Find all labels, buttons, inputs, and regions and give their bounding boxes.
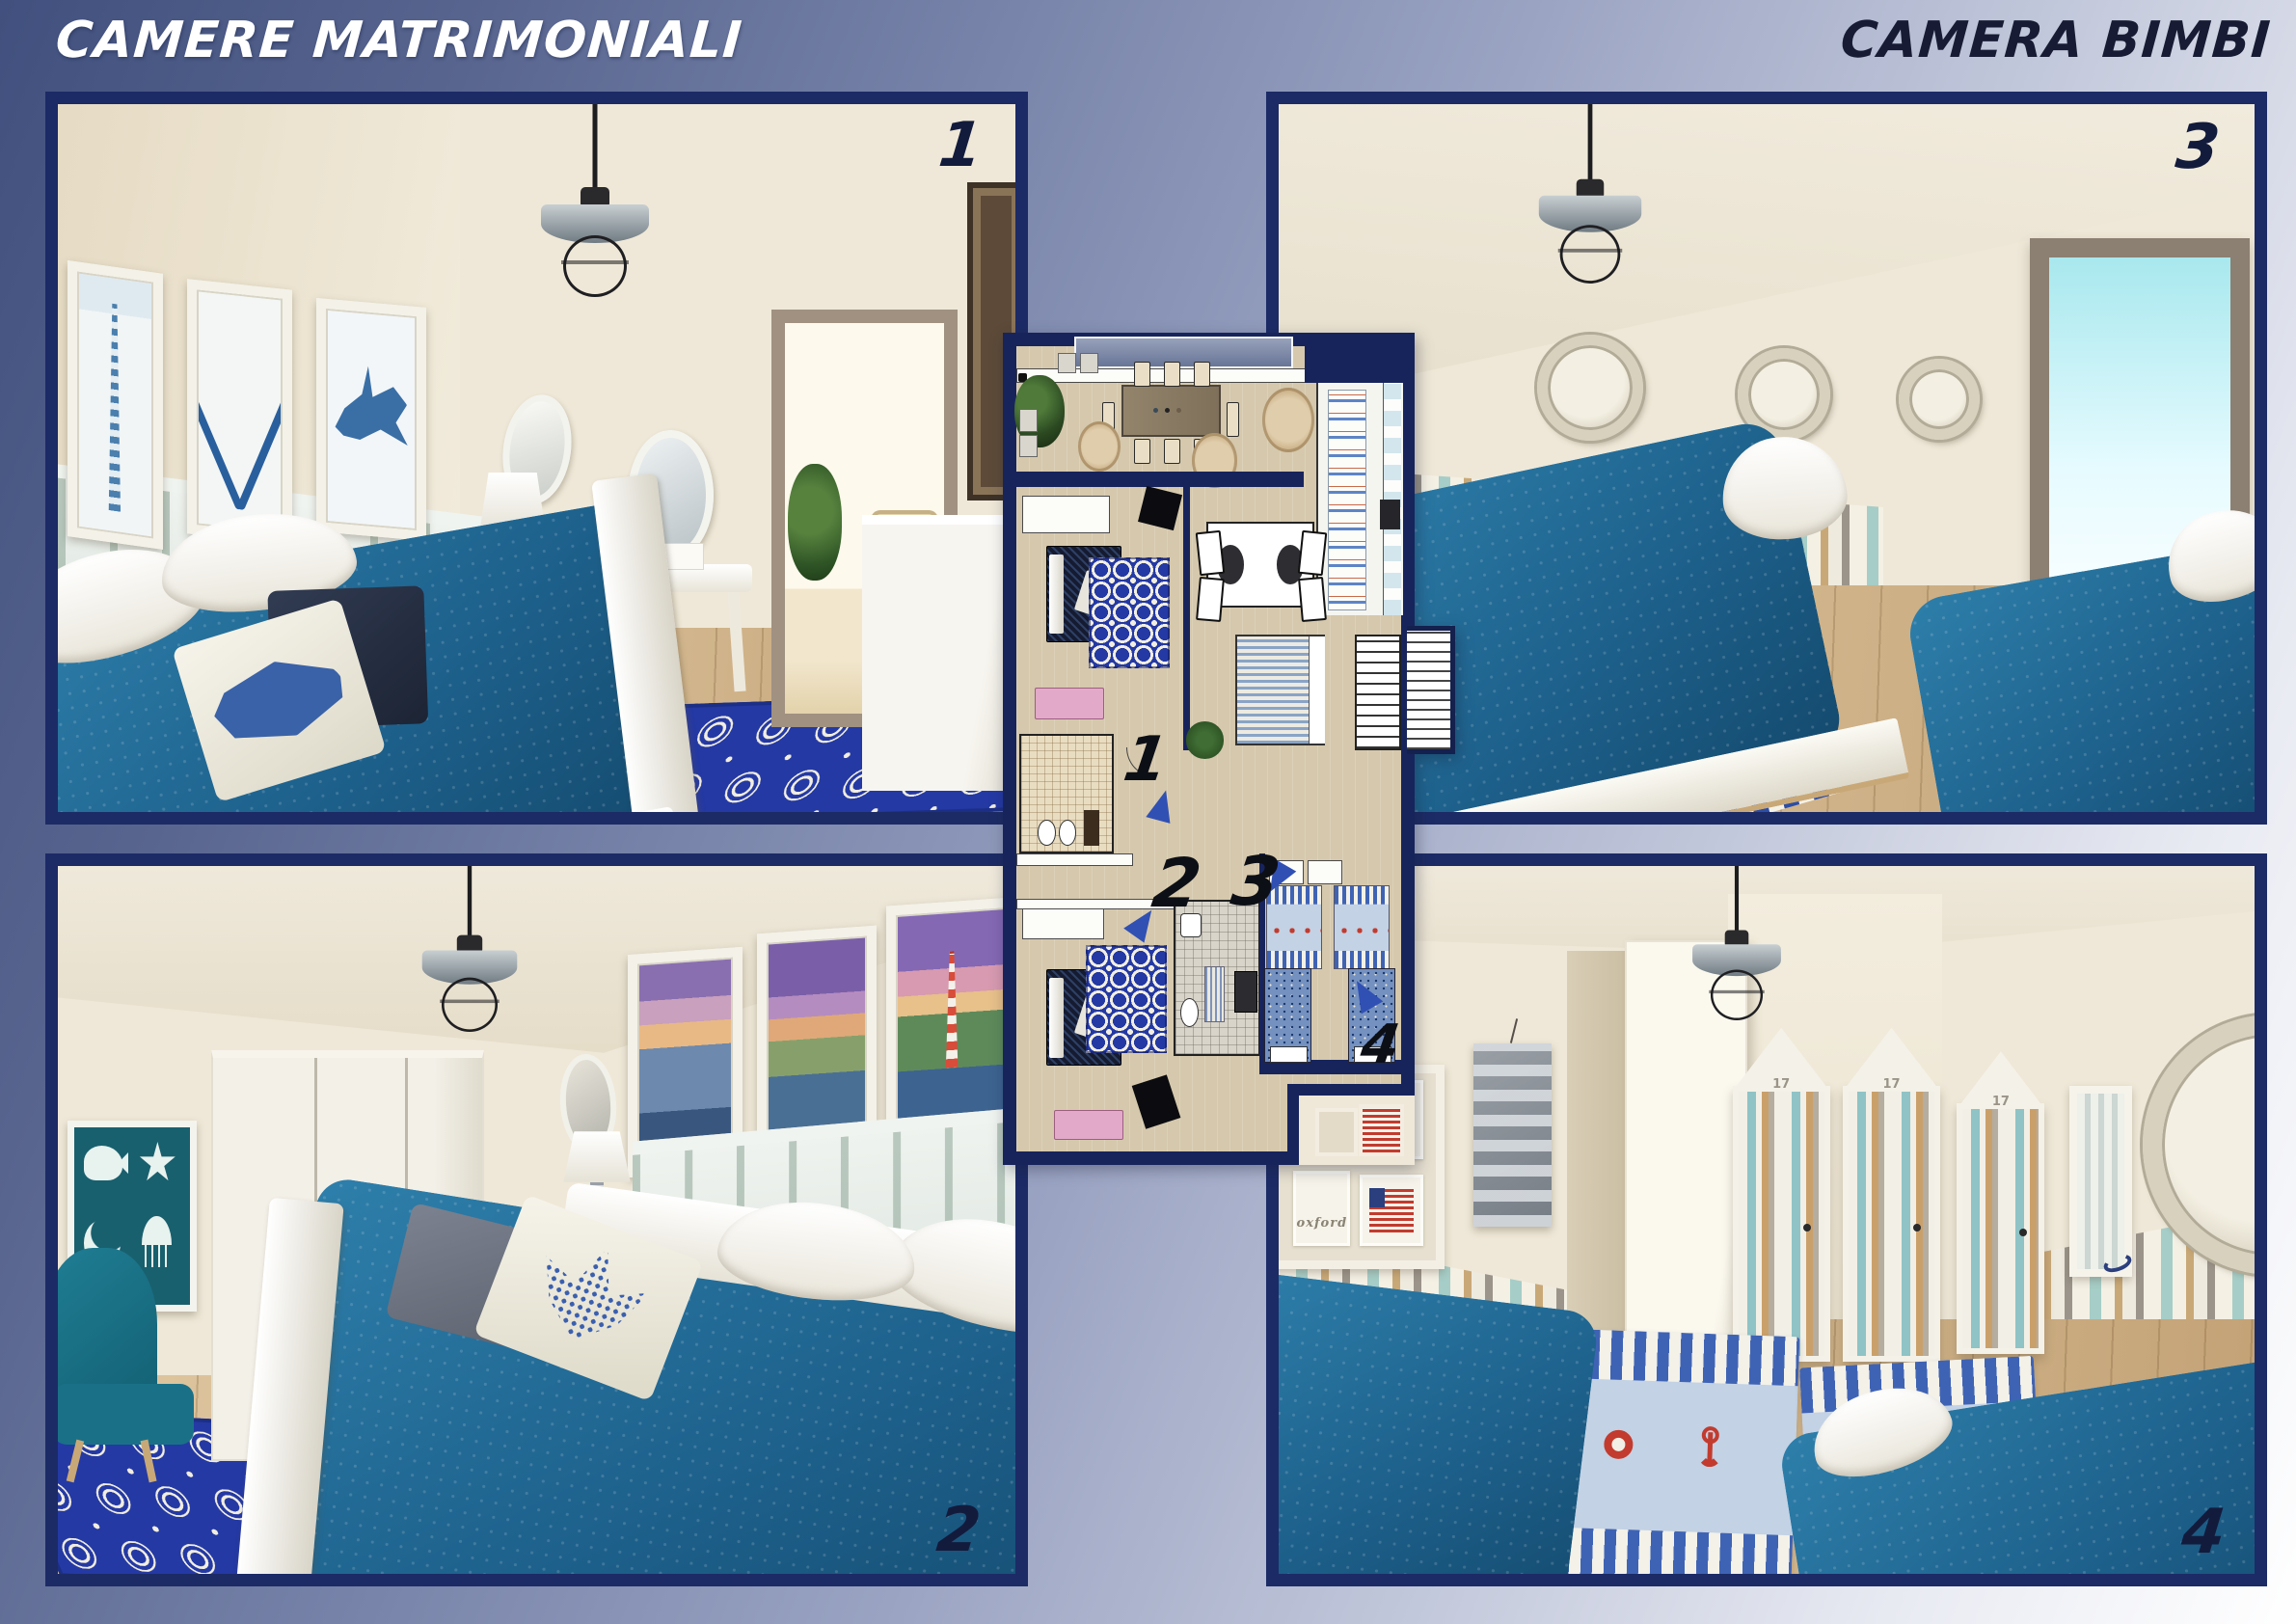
floor-plan-interior: 1 2 3 4 xyxy=(1016,346,1401,1151)
lighthouse-art xyxy=(79,274,151,537)
interior-wall xyxy=(1016,472,1304,487)
panel-number-1: 1 xyxy=(936,110,986,181)
oxford-card: oxford xyxy=(1293,1171,1350,1246)
living-chair xyxy=(1195,530,1224,577)
dining-chair xyxy=(1227,402,1239,438)
pendant-cage-lamp-icon xyxy=(1689,862,1784,1030)
lamp-cage-band xyxy=(1709,990,1764,993)
plant-icon xyxy=(1186,721,1225,758)
title-master-bedrooms: CAMERE MATRIMONIALI xyxy=(54,12,744,69)
pendant-cage-lamp-icon xyxy=(537,104,653,309)
teal-bedspread xyxy=(1266,1269,1600,1586)
oven xyxy=(1380,500,1400,530)
nautical-rug-1 xyxy=(1557,1329,1800,1584)
braided-rug xyxy=(1078,421,1121,472)
beach-hut-locker: 17 xyxy=(1957,1103,2044,1355)
lamp-cage-band xyxy=(1558,249,1623,253)
white-frame-mirror xyxy=(2069,1086,2133,1277)
lamp-cord xyxy=(592,104,597,193)
single-bed-right xyxy=(1900,511,2267,825)
bedroom2-armchair xyxy=(1132,1074,1181,1128)
lamp-cord xyxy=(1735,862,1739,934)
panel-number-4: 4 xyxy=(2179,1497,2229,1568)
table-leg xyxy=(727,592,745,692)
locker-number: 17 xyxy=(1882,1077,1900,1092)
plan-border-notch xyxy=(1287,1084,1415,1165)
single-bed-left xyxy=(1266,1269,1600,1586)
living-chair xyxy=(1196,577,1225,622)
presentation-board: { "board": { "title_left": "CAMERE MATRI… xyxy=(0,0,2296,1624)
armchair-seat xyxy=(53,1384,194,1445)
fish-pattern-runner xyxy=(1328,390,1366,610)
door-opening xyxy=(1567,951,1626,1354)
balcony xyxy=(1074,337,1293,368)
bedroom2-wardrobe xyxy=(1022,908,1104,939)
render-panel-1: 1 xyxy=(45,92,1028,825)
bath-mat xyxy=(1204,966,1226,1022)
gray-wooden-sign xyxy=(1473,1043,1552,1228)
living-chair xyxy=(1298,577,1327,622)
locker-roof: 17 xyxy=(1957,1051,2044,1109)
bedroom2-pink-bench xyxy=(1054,1110,1123,1141)
jellyfish-icon xyxy=(142,1216,172,1244)
floor-tile xyxy=(1080,353,1098,374)
armchair-leg xyxy=(141,1440,157,1482)
bedroom1-blue-rug xyxy=(1089,557,1170,668)
fish-icon xyxy=(84,1146,123,1181)
lamp-glass xyxy=(1711,970,1763,1020)
dining-table xyxy=(1121,385,1222,436)
locker-number: 17 xyxy=(1772,1077,1790,1092)
oxford-label: oxford xyxy=(1296,1216,1347,1231)
lamp-cord xyxy=(1588,100,1593,184)
bathroom-vanity xyxy=(1084,810,1099,846)
white-dresser xyxy=(862,515,1025,791)
tv-unit xyxy=(1138,486,1182,530)
kids-nautical-rug xyxy=(1334,885,1390,969)
interior-wall xyxy=(1183,472,1189,750)
panel-number-2: 2 xyxy=(934,1495,985,1566)
pendant-cage-lamp-icon xyxy=(419,862,522,1042)
stairs xyxy=(1355,635,1401,750)
porthole-mirror xyxy=(1537,335,1643,441)
lamp-cage-band xyxy=(441,1000,500,1004)
floor-tile xyxy=(1019,435,1038,457)
floor-tile xyxy=(1058,353,1076,374)
bidet xyxy=(1059,820,1076,846)
title-kids-room: CAMERA BIMBI xyxy=(1839,12,2273,69)
kids-single-bed xyxy=(1264,968,1311,1064)
plan-label-1: 1 xyxy=(1120,724,1173,796)
locker-number: 17 xyxy=(1992,1095,2010,1109)
beach-hut-locker: 17 xyxy=(1733,1086,1830,1362)
anchor-icon xyxy=(1697,1438,1723,1468)
lifebuoy-icon xyxy=(1604,1429,1634,1459)
dining-chair xyxy=(1164,439,1180,464)
bedroom1-closet xyxy=(1022,496,1111,532)
plant-icon xyxy=(788,464,842,582)
interior-wall xyxy=(1016,853,1133,866)
washing-machine xyxy=(1234,971,1257,1013)
starfish-icon xyxy=(139,1142,176,1184)
dining-chair xyxy=(1134,439,1150,464)
lighthouse-art-frame xyxy=(68,260,163,550)
stairwell-annex xyxy=(1407,626,1455,754)
us-flag-card xyxy=(1360,1175,1423,1246)
bedroom1-pink-bench xyxy=(1035,688,1104,719)
beach-hut-locker: 17 xyxy=(1843,1086,1940,1362)
render-panel-2: 2 xyxy=(45,853,1028,1586)
lamp-cord xyxy=(468,862,472,940)
porthole-mirror xyxy=(1899,359,1980,440)
coral-art xyxy=(199,292,281,532)
floor-plan: 1 2 3 4 xyxy=(1003,333,1415,1165)
striped-sofa xyxy=(1235,635,1325,745)
pendant-cage-lamp-icon xyxy=(1535,100,1645,294)
floor-tile xyxy=(1019,409,1038,431)
lamp-glass xyxy=(563,235,627,297)
lamp-glass xyxy=(442,978,498,1032)
bedroom2-blue-rug xyxy=(1086,945,1167,1053)
kids-closet xyxy=(1308,860,1342,884)
lamp-glass xyxy=(1560,225,1621,284)
dining-chair xyxy=(1164,362,1180,387)
trinket-box xyxy=(662,543,705,570)
coral-art-frame xyxy=(187,279,292,545)
living-chair xyxy=(1297,530,1326,577)
lighthouse-icon xyxy=(938,936,966,1068)
dining-chair xyxy=(1134,362,1150,387)
toilet xyxy=(1038,820,1055,846)
lamp-cage-band xyxy=(561,260,629,264)
braided-rug xyxy=(1262,388,1314,452)
bed-base xyxy=(1266,1578,1562,1586)
teal-armchair xyxy=(45,1248,197,1481)
armchair-leg xyxy=(67,1440,84,1482)
render-panel-4: oxford 17 17 17 4 xyxy=(1266,853,2267,1586)
kitchen-wall xyxy=(1305,337,1405,383)
panel-number-3: 3 xyxy=(2174,112,2224,183)
dining-chair xyxy=(1194,362,1210,387)
